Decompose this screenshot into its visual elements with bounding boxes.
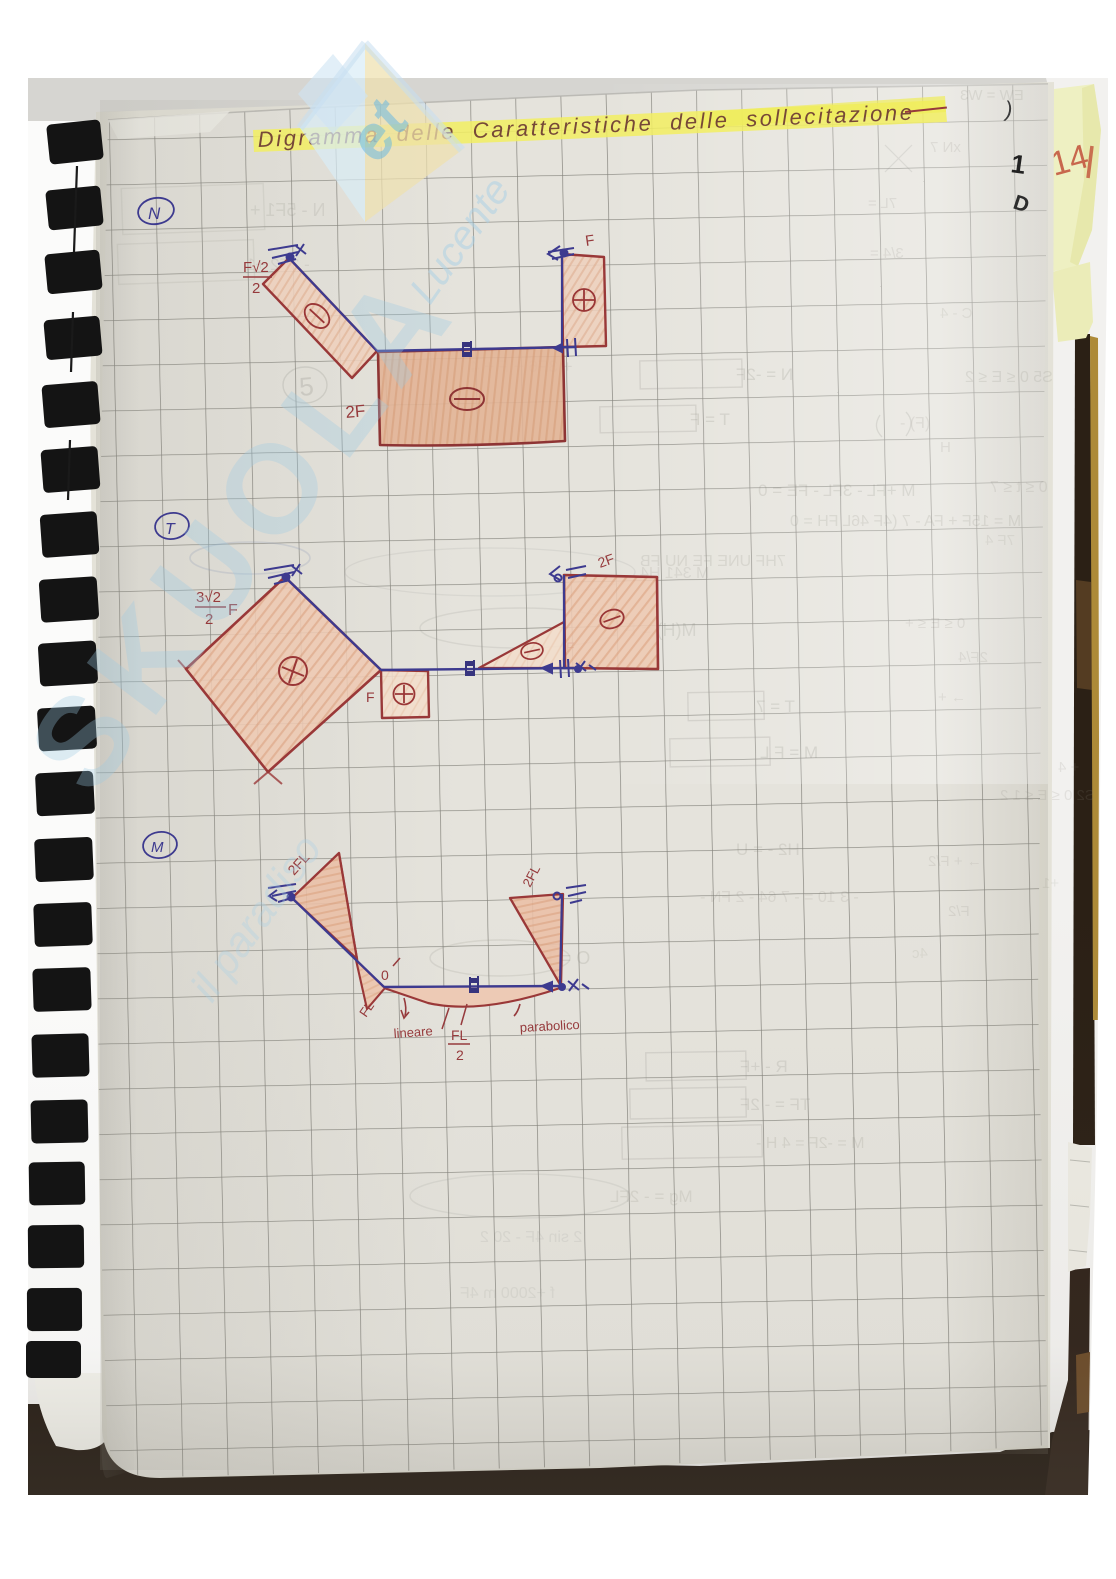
- svg-text:2F/4: 2F/4: [958, 649, 988, 666]
- svg-text:M = 15F + FA - 7 (4F 46L FH =: M = 15F + FA - 7 (4F 46L FH = 0: [790, 513, 1021, 530]
- svg-text:7HF UNE FE NU FB: 7HF UNE FE NU FB: [640, 553, 786, 570]
- svg-text:T = F: T = F: [690, 410, 730, 429]
- svg-text:FL: FL: [451, 1027, 468, 1043]
- svg-text:lineare: lineare: [393, 1023, 433, 1041]
- svg-text:M: M: [151, 839, 164, 856]
- svg-text:S2 0 ≤ E ≤ 1 2: S2 0 ≤ E ≤ 1 2: [1000, 787, 1095, 804]
- svg-text:2 sin 4F - 20 2: 2 sin 4F - 20 2: [480, 1229, 582, 1246]
- svg-text:F√2: F√2: [243, 259, 269, 276]
- svg-text:7F 4: 7F 4: [985, 532, 1015, 549]
- svg-text:C - 4: C - 4: [940, 305, 973, 322]
- svg-text:7L =: 7L =: [868, 195, 897, 212]
- svg-text:M = F L: M = F L: [760, 743, 818, 762]
- svg-text:EW = W3: EW = W3: [960, 87, 1024, 104]
- svg-text:3/4 =: 3/4 =: [870, 245, 904, 262]
- svg-text:+1: +1: [1042, 875, 1059, 892]
- svg-text:parabolico: parabolico: [519, 1017, 580, 1035]
- svg-text:4c: 4c: [912, 945, 928, 962]
- svg-text:xN 7: xN 7: [930, 139, 961, 156]
- svg-text:R - +F: R - +F: [740, 1057, 788, 1076]
- svg-text:H2 - = U: H2 - = U: [736, 840, 800, 859]
- svg-text:H: H: [940, 439, 951, 456]
- svg-text:F/2: F/2: [948, 903, 970, 920]
- svg-text:→ + F/2: → + F/2: [928, 853, 982, 870]
- svg-text:2: 2: [456, 1047, 464, 1063]
- svg-text:- 3 10 = - 7 64 - 2 FN -: - 3 10 = - 7 64 - 2 FN -: [700, 889, 859, 906]
- svg-text:0 ≤ E ≤ +: 0 ≤ E ≤ +: [905, 615, 965, 632]
- svg-text:2: 2: [252, 280, 260, 297]
- svg-text:0 ≤ t ≤ 7: 0 ≤ t ≤ 7: [990, 479, 1048, 496]
- svg-text:M +FL - 3FL - FE = 0: M +FL - 3FL - FE = 0: [758, 481, 915, 500]
- svg-text:→ +: → +: [938, 689, 966, 706]
- svg-text:(F) -: (F) -: [900, 415, 930, 432]
- svg-text:TF = - 2F: TF = - 2F: [740, 1095, 810, 1114]
- svg-text:N = -2F: N = -2F: [736, 365, 793, 384]
- svg-text:N: N: [148, 204, 161, 223]
- svg-text:T = 7: T = 7: [756, 697, 795, 716]
- svg-text:f +2000 m 4F: f +2000 m 4F: [460, 1285, 555, 1302]
- svg-text:S5 0 ≤ E ≤ 2: S5 0 ≤ E ≤ 2: [965, 369, 1053, 386]
- svg-text:0: 0: [381, 967, 389, 983]
- svg-text:+ 4: + 4: [1058, 759, 1079, 776]
- svg-text:N - 5F1 +: N - 5F1 +: [250, 200, 326, 220]
- svg-text:F: F: [366, 689, 375, 705]
- svg-text:M = -2F = 4 H -: M = -2F = 4 H -: [756, 1135, 864, 1152]
- svg-text:Mg = - 2FL: Mg = - 2FL: [610, 1187, 693, 1206]
